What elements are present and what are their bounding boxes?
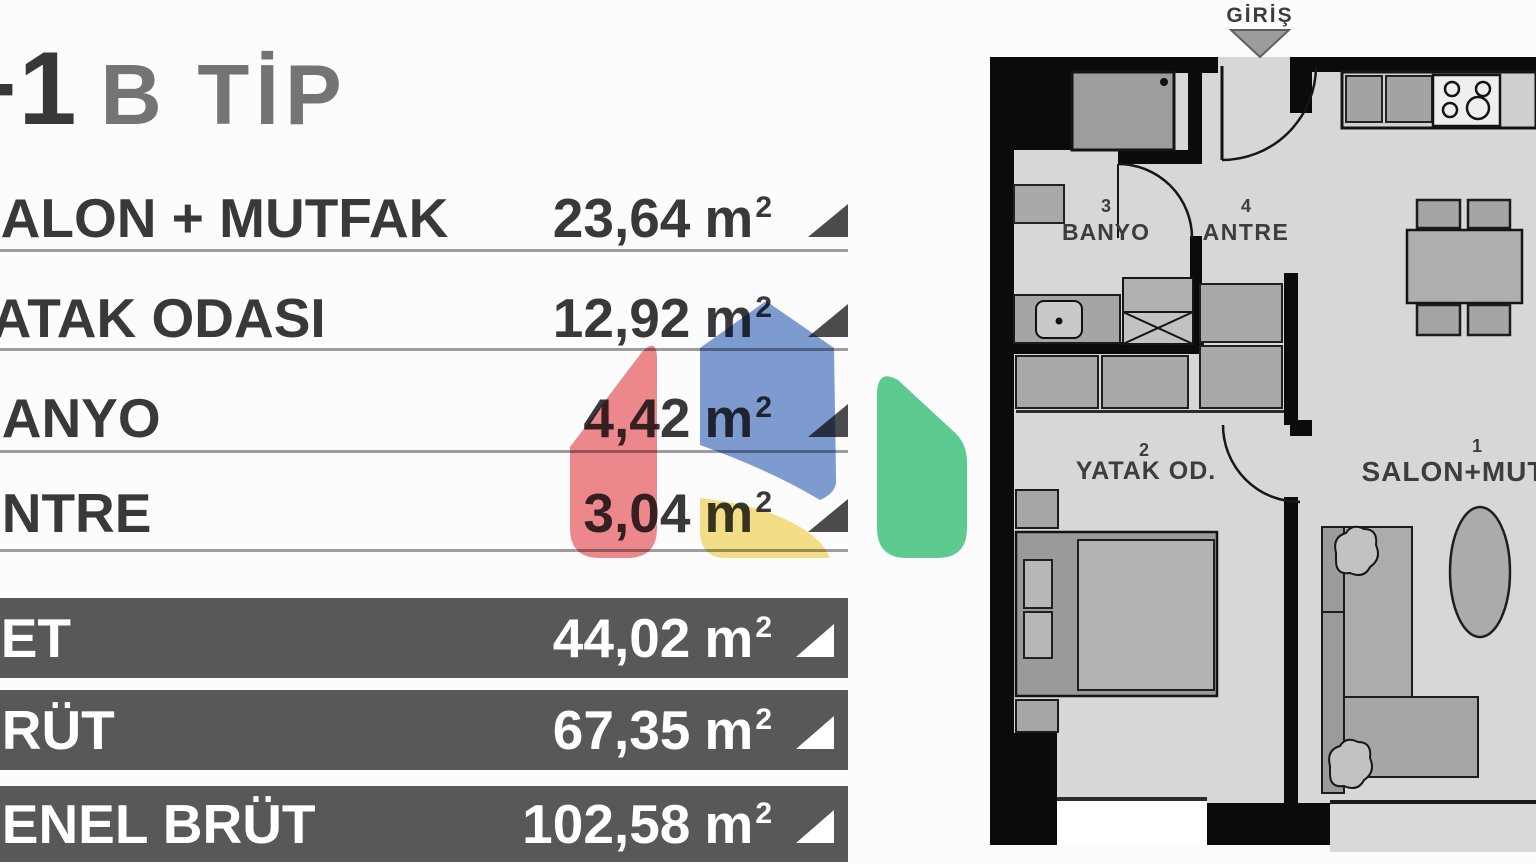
dining-table	[1407, 230, 1522, 303]
room-number: 4	[1241, 196, 1251, 216]
chair	[1417, 305, 1460, 335]
room-label-yatak: YATAK OD.	[1076, 457, 1217, 485]
nightstand	[1016, 700, 1058, 732]
balcony-edge	[1330, 800, 1536, 804]
chair	[1417, 200, 1460, 228]
floor-plan: GİRİŞ 3 BANYO 4 ANTRE 2 YATAK OD. 1 SALO…	[0, 0, 1536, 864]
room-label-salon: SALON+MUTFAK	[1362, 456, 1536, 487]
chair	[1468, 305, 1510, 335]
stove	[1433, 75, 1500, 126]
kitchen-cabinet	[1386, 76, 1432, 122]
window	[1057, 801, 1207, 845]
shower-head-icon	[1160, 78, 1168, 86]
kitchen-cabinet	[1346, 76, 1382, 122]
hall-cabinet	[1200, 284, 1282, 342]
mattress	[1078, 540, 1214, 690]
closet	[1016, 356, 1098, 408]
toilet	[1014, 185, 1064, 223]
closet-front-line	[1016, 410, 1284, 413]
chair	[1468, 200, 1510, 228]
window-sill	[1057, 797, 1207, 801]
balcony-floor	[1330, 806, 1536, 852]
room-number: 1	[1472, 436, 1482, 456]
room-label-antre: ANTRE	[1203, 219, 1290, 245]
sink-drain-icon	[1056, 318, 1063, 325]
shower	[1072, 72, 1174, 150]
pillow	[1024, 612, 1052, 658]
rug	[1450, 507, 1510, 637]
nightstand	[1016, 490, 1058, 528]
pillow	[1024, 560, 1052, 608]
closet	[1200, 346, 1282, 408]
floorplan-datasheet: 1+1 B TİP SALON + MUTFAK 23,64 m2 YATAK …	[0, 0, 1536, 864]
closet	[1102, 356, 1188, 408]
room-number: 3	[1101, 196, 1111, 216]
room-label-banyo: BANYO	[1062, 219, 1150, 245]
entrance-label: GİRİŞ	[1226, 4, 1293, 27]
entrance-arrow-icon	[1231, 30, 1289, 57]
bath-cabinet	[1123, 278, 1193, 312]
